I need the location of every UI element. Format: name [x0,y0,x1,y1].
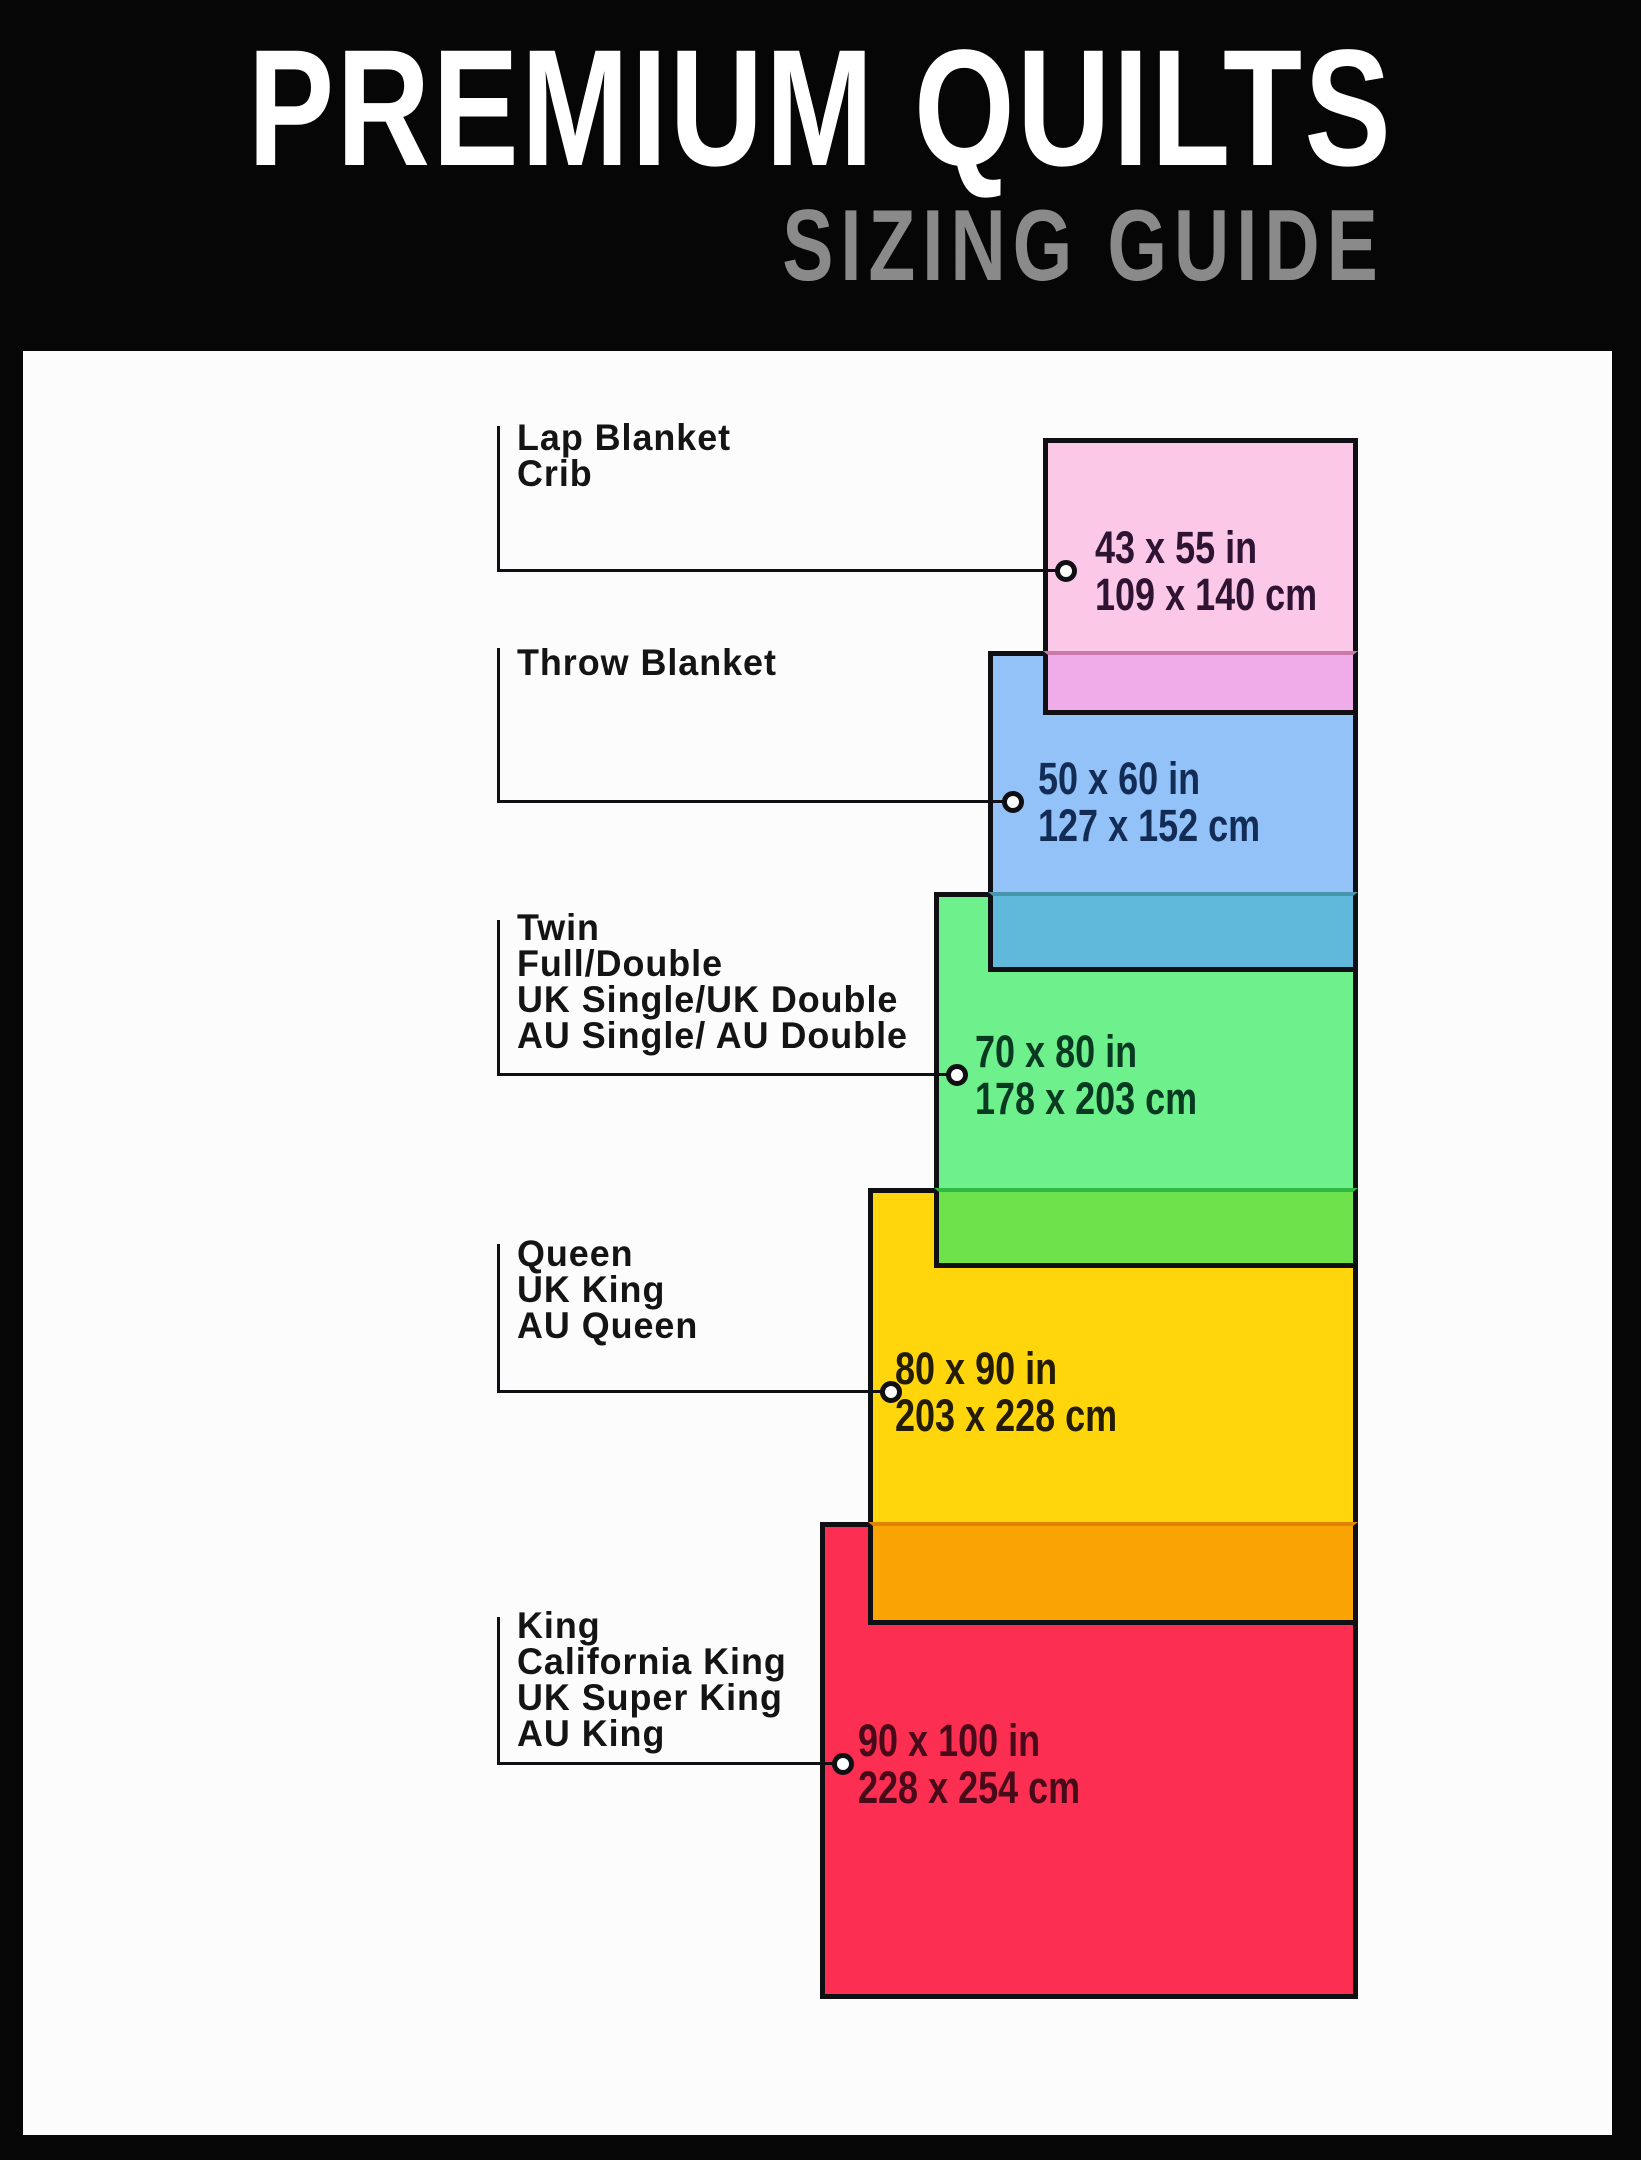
connector-vline-lap-crib [497,426,500,572]
dims-cm: 203 x 228 cm [895,1392,1117,1439]
label-line: AU Single/ AU Double [517,1018,908,1054]
label-line: UK Single/UK Double [517,982,908,1018]
circle-marker-throw [1002,791,1024,813]
dims-inches: 70 x 80 in [975,1028,1197,1075]
dims-cm: 109 x 140 cm [1095,571,1317,618]
circle-marker-twin-full [946,1064,968,1086]
circle-marker-lap-crib [1055,560,1077,582]
dims-inches: 50 x 60 in [1038,755,1260,802]
connector-vline-king [497,1617,500,1765]
label-line: Full/Double [517,946,908,982]
dims-twin-full-double: 70 x 80 in 178 x 203 cm [975,1028,1197,1122]
label-line: Twin [517,910,908,946]
label-line: AU King [517,1716,787,1752]
overlap-band-twin-queen [934,1188,1358,1268]
label-line: Lap Blanket [517,420,731,456]
label-group-lap-blanket-crib: Lap Blanket Crib [517,420,731,492]
label-group-king: King California King UK Super King AU Ki… [517,1608,787,1752]
label-line: Queen [517,1236,698,1272]
page-title: PREMIUM QUILTS [181,26,1461,192]
dims-inches: 43 x 55 in [1095,524,1317,571]
connector-hline-queen [498,1390,891,1393]
infographic-canvas: PREMIUM QUILTS SIZING GUIDE Lap Blanket … [0,0,1641,2160]
label-group-throw-blanket: Throw Blanket [517,645,777,681]
dims-queen: 80 x 90 in 203 x 228 cm [895,1345,1117,1439]
dims-king: 90 x 100 in 228 x 254 cm [858,1717,1080,1811]
connector-vline-throw [497,648,500,803]
dims-throw-blanket: 50 x 60 in 127 x 152 cm [1038,755,1260,849]
content-panel [23,351,1612,2135]
connector-hline-twin-full [498,1073,957,1076]
label-line: UK Super King [517,1680,787,1716]
connector-hline-lap-crib [498,569,1066,572]
circle-marker-king [832,1753,854,1775]
label-line: AU Queen [517,1308,698,1344]
connector-hline-king [498,1762,843,1765]
overlap-band-lap-throw [1043,651,1358,715]
dims-inches: 80 x 90 in [895,1345,1117,1392]
connector-hline-throw [498,800,1013,803]
overlap-band-throw-twin [988,892,1358,972]
connector-vline-twin-full [497,920,500,1076]
overlap-band-queen-king [868,1522,1358,1625]
label-line: King [517,1608,787,1644]
dims-inches: 90 x 100 in [858,1717,1080,1764]
label-line: UK King [517,1272,698,1308]
label-group-queen: Queen UK King AU Queen [517,1236,698,1344]
label-line: Throw Blanket [517,645,777,681]
dims-cm: 178 x 203 cm [975,1075,1197,1122]
connector-vline-queen [497,1244,500,1393]
page-subtitle: SIZING GUIDE [783,196,1385,297]
label-line: Crib [517,456,731,492]
label-group-twin-full-double: Twin Full/Double UK Single/UK Double AU … [517,910,908,1054]
dims-lap-blanket-crib: 43 x 55 in 109 x 140 cm [1095,524,1317,618]
dims-cm: 228 x 254 cm [858,1764,1080,1811]
circle-marker-queen [880,1381,902,1403]
dims-cm: 127 x 152 cm [1038,802,1260,849]
label-line: California King [517,1644,787,1680]
